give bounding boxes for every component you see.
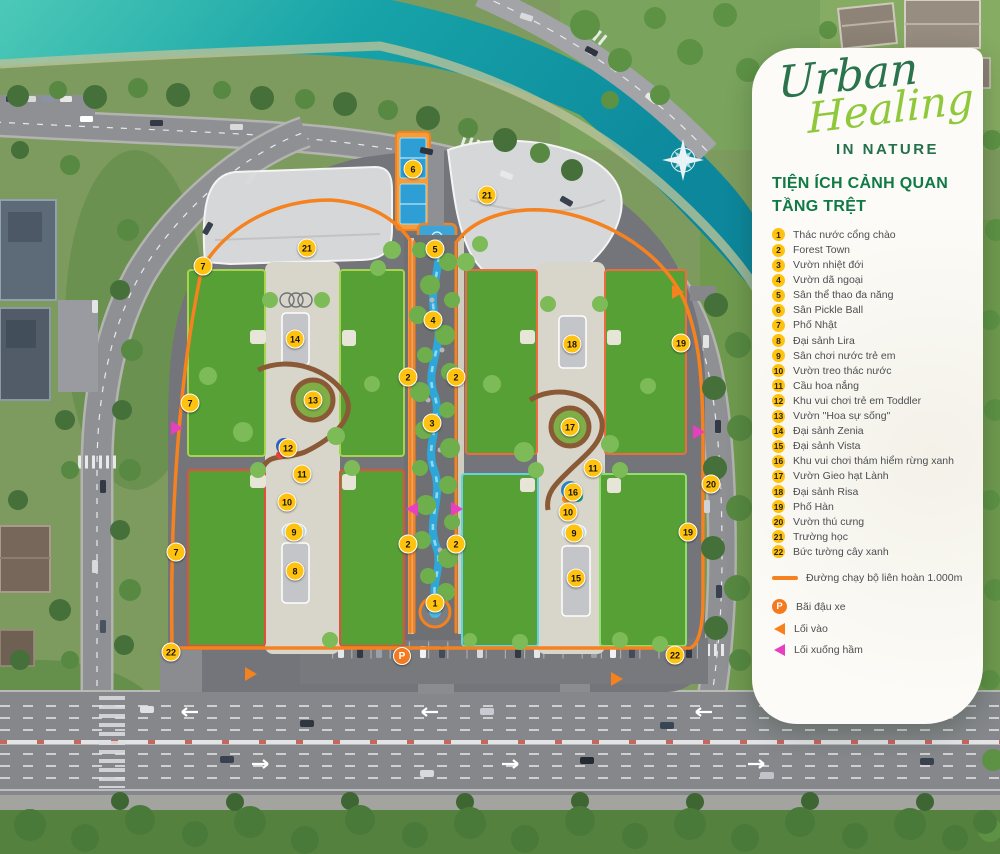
legend-item: 11 Cầu hoa nắng [772,378,973,393]
entry-arrow-icon [693,425,705,439]
legend-item-label: Vườn dã ngoại [793,274,863,286]
legend-item-label: Trường học [793,531,848,543]
legend-item-label: Thác nước cổng chào [793,229,896,241]
legend-item: 18 Đại sảnh Risa [772,484,973,499]
entry-arrow-icon [171,421,183,435]
parking-marker[interactable]: P [393,647,411,665]
legend-symbol-basement: Lối xuống hầm [772,644,973,656]
legend-item: 9 Sân chơi nước trẻ em [772,348,973,363]
legend-symbols: P Bãi đậu xe Lối vào Lối xuống hầm [772,599,973,656]
legend-item: 4 Vườn dã ngoại [772,273,973,288]
entry-arrow-icon [245,667,257,681]
legend-item-number-badge: 19 [772,500,785,513]
entry-arrow-icon [451,502,463,516]
legend-item: 12 Khu vui chơi trẻ em Toddler [772,393,973,408]
legend-item-number-badge: 7 [772,319,785,332]
legend-title: TIỆN ÍCH CẢNH QUAN TẦNG TRỆT [772,172,973,218]
legend-item: 6 Sân Pickle Ball [772,303,973,318]
legend-item: 16 Khu vui chơi thám hiểm rừng xanh [772,454,973,469]
entry-arrow-icon [406,502,418,516]
legend-item: 1 Thác nước cổng chào [772,227,973,242]
basement-triangle-icon [774,644,785,656]
legend-item-label: Vườn treo thác nước [793,365,891,377]
legend-item-label: Sân chơi nước trẻ em [793,350,896,362]
legend-item: 5 Sân thể thao đa năng [772,288,973,303]
basement-label: Lối xuống hầm [794,644,863,656]
jogging-route-label: Đường chạy bộ liên hoàn 1.000m [806,572,962,584]
legend-item-number-badge: 8 [772,334,785,347]
legend-item-label: Phố Hàn [793,501,834,513]
legend-panel: Urban Healing IN NATURE TIỆN ÍCH CẢNH QU… [752,48,983,724]
masterplan-poster: 1 2 2 2 2 3 [0,0,1000,854]
legend-item-label: Khu vui chơi thám hiểm rừng xanh [793,455,954,467]
jogging-route-line-icon [772,576,798,580]
legend-symbol-entry: Lối vào [772,623,973,635]
legend-item-label: Vườn nhiệt đới [793,259,863,271]
legend-item-label: Khu vui chơi trẻ em Toddler [793,395,921,407]
legend-item-number-badge: 20 [772,515,785,528]
legend-item-number-badge: 15 [772,440,785,453]
legend-item: 7 Phố Nhật [772,318,973,333]
legend-item-label: Vườn Gieo hạt Lành [793,470,889,482]
legend-item: 3 Vườn nhiệt đới [772,258,973,273]
legend-item-label: Đại sảnh Lira [793,335,855,347]
legend-item-number-badge: 3 [772,259,785,272]
entry-arrow-icon [672,285,684,299]
legend-item-number-badge: 11 [772,379,785,392]
legend-item-number-badge: 14 [772,425,785,438]
legend-item-number-badge: 16 [772,455,785,468]
legend-item: 8 Đại sảnh Lira [772,333,973,348]
project-logo: Urban Healing IN NATURE [772,62,973,157]
legend-item-number-badge: 4 [772,274,785,287]
entry-arrow-icon [611,672,623,686]
legend-item-label: Cầu hoa nắng [793,380,859,392]
legend-item-label: Sân Pickle Ball [793,304,863,316]
legend-title-line1: TIỆN ÍCH CẢNH QUAN [772,175,948,192]
legend-title-line2: TẦNG TRỆT [772,198,866,215]
legend-item-number-badge: 13 [772,410,785,423]
legend-item: 15 Đại sảnh Vista [772,439,973,454]
legend-item-number-badge: 12 [772,394,785,407]
legend-item-number-badge: 21 [772,530,785,543]
parking-icon: P [772,599,787,614]
legend-item: 22 Bức tường cây xanh [772,544,973,559]
legend-item-label: Đại sảnh Vista [793,440,861,452]
legend-item-number-badge: 10 [772,364,785,377]
logo-word-in-nature: IN NATURE [836,142,973,157]
legend-item-label: Bức tường cây xanh [793,546,889,558]
legend-item-label: Forest Town [793,244,850,256]
legend-symbol-parking: P Bãi đậu xe [772,599,973,614]
legend-item: 10 Vườn treo thác nước [772,363,973,378]
legend-jogging-route: Đường chạy bộ liên hoàn 1.000m [772,572,973,584]
legend-item: 14 Đại sảnh Zenia [772,424,973,439]
legend-item-label: Phố Nhật [793,319,837,331]
legend-item: 17 Vườn Gieo hạt Lành [772,469,973,484]
legend-item-label: Sân thể thao đa năng [793,289,893,301]
legend-item-number-badge: 17 [772,470,785,483]
legend-item-number-badge: 9 [772,349,785,362]
entry-label: Lối vào [794,623,828,635]
legend-item-number-badge: 2 [772,244,785,257]
legend-item-label: Đại sảnh Risa [793,486,858,498]
legend-item-number-badge: 18 [772,485,785,498]
legend-item-label: Vườn "Hoa sự sống" [793,410,890,422]
legend-item-label: Vườn thú cưng [793,516,864,528]
legend-item-number-badge: 5 [772,289,785,302]
legend-item-label: Đại sảnh Zenia [793,425,864,437]
parking-label: Bãi đậu xe [796,601,846,613]
legend-item-number-badge: 6 [772,304,785,317]
entry-triangle-icon [774,623,785,635]
legend-item: 2 Forest Town [772,242,973,257]
legend-item-number-badge: 1 [772,228,785,241]
legend-item: 20 Vườn thú cưng [772,514,973,529]
legend-items: 1 Thác nước cổng chào 2 Forest Town 3 Vư… [772,227,973,559]
legend-item: 13 Vườn "Hoa sự sống" [772,409,973,424]
legend-item-number-badge: 22 [772,545,785,558]
legend-item: 21 Trường học [772,529,973,544]
legend-item: 19 Phố Hàn [772,499,973,514]
